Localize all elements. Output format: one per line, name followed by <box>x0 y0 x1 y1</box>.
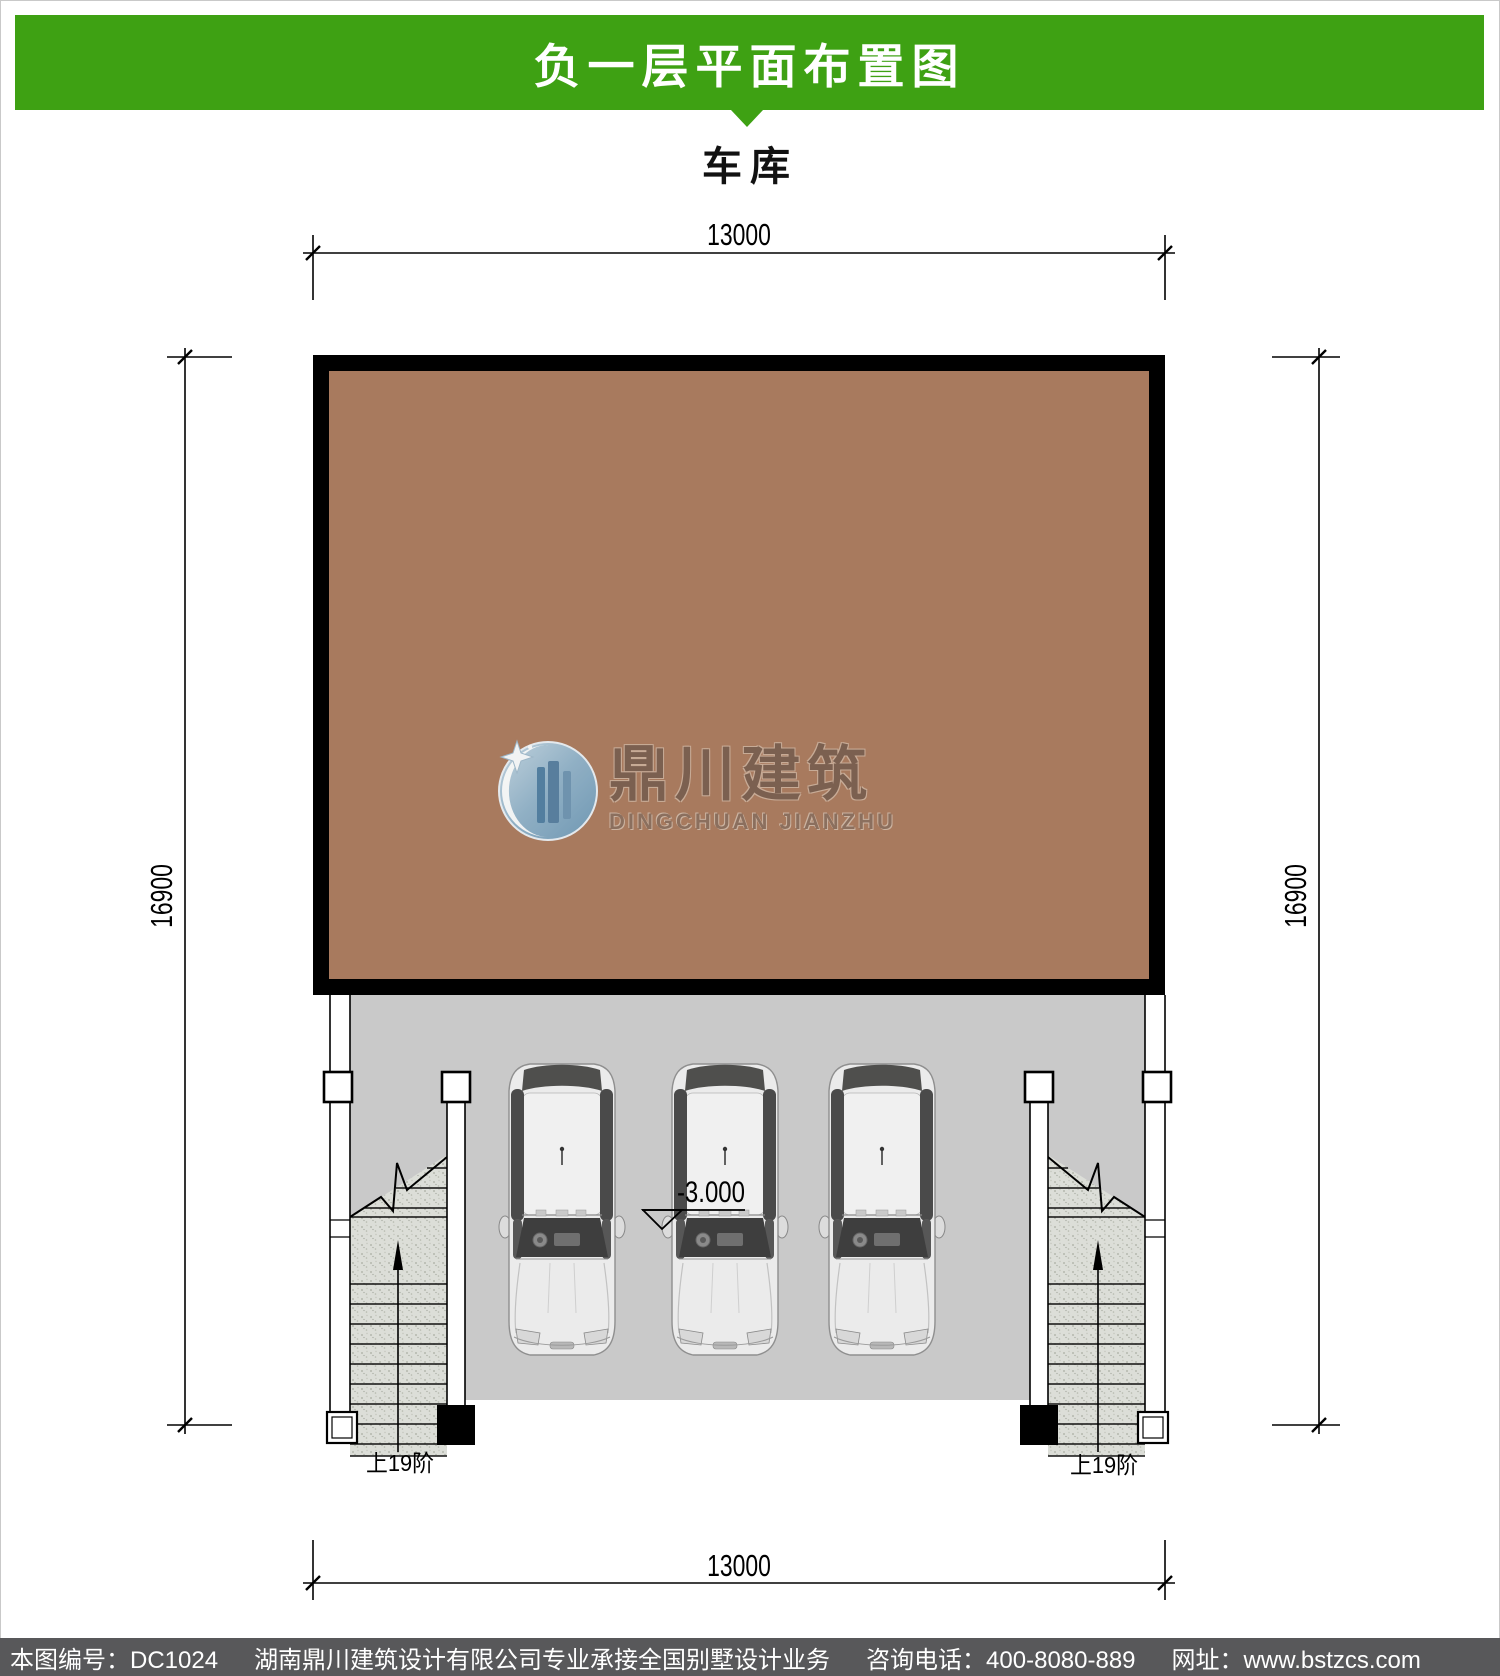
dimension-right-value: 16900 <box>1278 822 1314 970</box>
dimension-bottom-value: 13000 <box>665 1548 813 1584</box>
page-title: 负一层平面布置图 <box>534 28 966 97</box>
dingchuan-logo-icon <box>497 733 599 845</box>
watermark-texts: 鼎川建筑 DINGCHUAN JIANZHU <box>609 743 896 835</box>
elevation-value: -3.000 <box>629 1176 745 1210</box>
dimension-top-value: 13000 <box>665 217 813 253</box>
column-post <box>324 1072 352 1102</box>
footer-phone: 咨询电话：400-8080-889 <box>866 1640 1135 1675</box>
room-label: 车库 <box>0 134 1500 192</box>
footer-bar: 本图编号：DC1024 湖南鼎川建筑设计有限公司专业承接全国别墅设计业务 咨询电… <box>0 1638 1500 1676</box>
stair-right-label: 上19阶 <box>1038 1446 1171 1480</box>
footer-drawing-no: 本图编号：DC1024 <box>10 1640 218 1675</box>
header-pointer-triangle <box>731 110 763 127</box>
watermark-en-text: DINGCHUAN JIANZHU <box>609 809 896 835</box>
column-post <box>1138 1412 1168 1443</box>
floor-plan-page: 负一层平面布置图 车库 鼎川建筑 DINGCHUAN JIANZHU <box>0 0 1500 1676</box>
footer-website: 网址：www.bstzcs.com <box>1172 1640 1421 1675</box>
car-top-view-icon <box>818 1061 946 1357</box>
column-post <box>1143 1072 1171 1102</box>
footer-company: 湖南鼎川建筑设计有限公司专业承接全国别墅设计业务 <box>254 1640 830 1675</box>
watermark-cn-text: 鼎川建筑 <box>609 743 896 806</box>
watermark: 鼎川建筑 DINGCHUAN JIANZHU <box>497 733 896 845</box>
storage-room <box>313 355 1165 995</box>
stair-left-label: 上19阶 <box>334 1444 467 1478</box>
car-top-view-icon <box>498 1061 626 1357</box>
dimension-left-value: 16900 <box>144 822 180 970</box>
railing-post-solid <box>437 1405 475 1445</box>
railing-post-solid <box>1020 1405 1058 1445</box>
header-bar: 负一层平面布置图 <box>15 15 1484 110</box>
column-post <box>327 1412 357 1443</box>
